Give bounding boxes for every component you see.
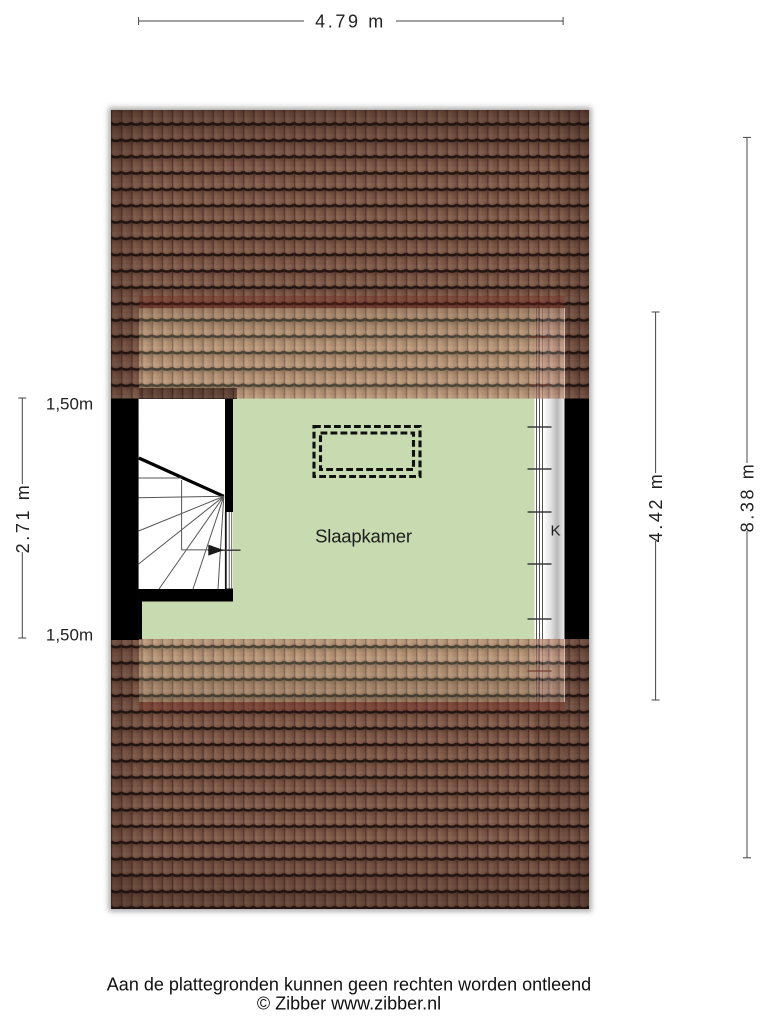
svg-text:Aan de plattegronden kunnen ge: Aan de plattegronden kunnen geen rechten… xyxy=(107,975,591,995)
svg-text:4.79 m: 4.79 m xyxy=(315,12,386,32)
svg-text:1,50m: 1,50m xyxy=(46,395,93,414)
svg-text:© Zibber www.zibber.nl: © Zibber www.zibber.nl xyxy=(257,994,441,1014)
svg-text:1,50m: 1,50m xyxy=(46,626,93,645)
svg-text:4.42 m: 4.42 m xyxy=(646,472,666,543)
svg-text:8.38 m: 8.38 m xyxy=(738,462,758,533)
svg-text:K: K xyxy=(550,523,560,540)
svg-text:Slaapkamer: Slaapkamer xyxy=(315,526,412,547)
svg-text:2.71 m: 2.71 m xyxy=(13,483,33,554)
